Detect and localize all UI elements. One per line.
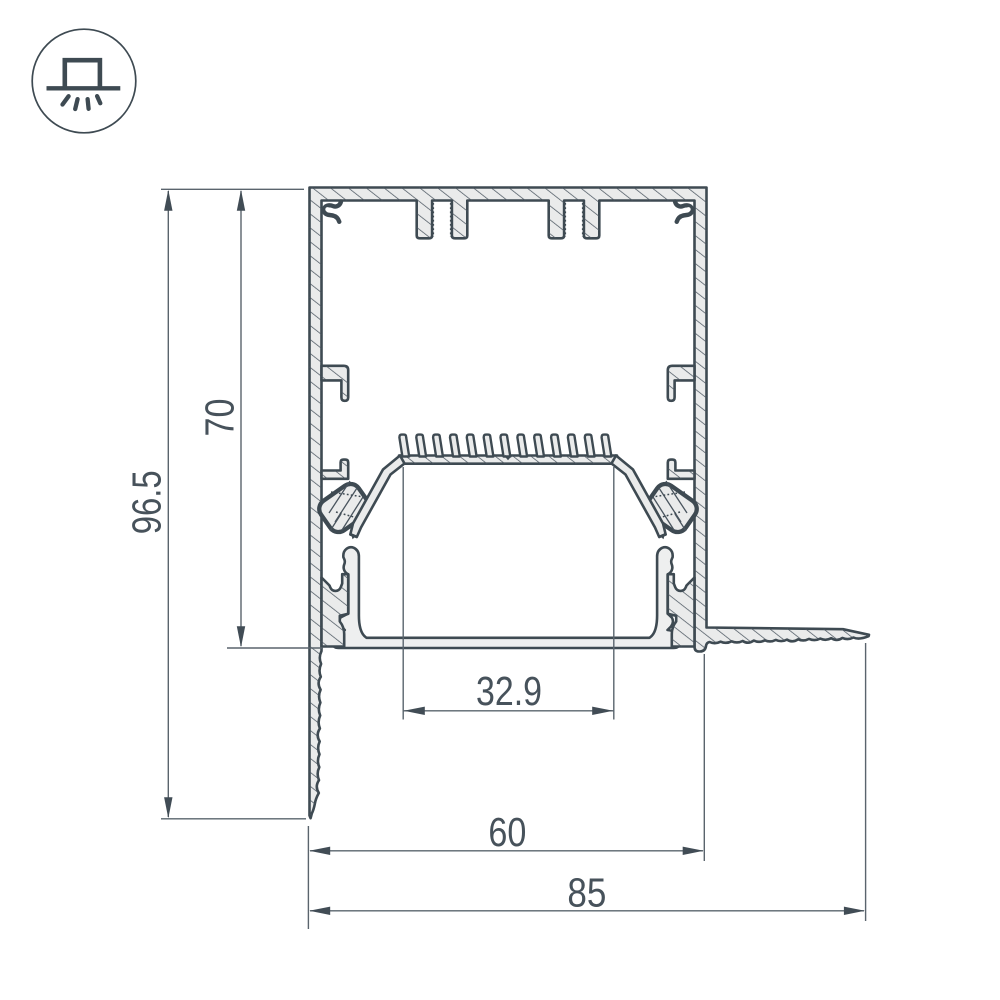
svg-text:85: 85 [567,870,606,916]
svg-text:32.9: 32.9 [476,668,542,714]
svg-text:70: 70 [197,399,243,437]
svg-text:96.5: 96.5 [124,470,170,534]
svg-text:60: 60 [488,809,526,855]
